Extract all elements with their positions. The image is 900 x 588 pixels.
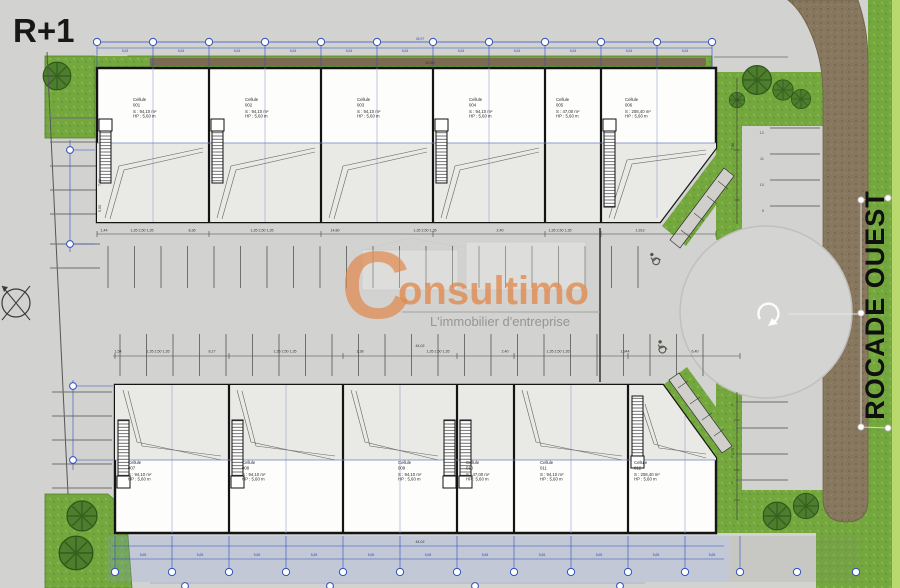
building-bottom-shade xyxy=(115,385,716,460)
cell-number: 010 xyxy=(466,465,474,470)
bay-dim: 5,63 xyxy=(178,49,185,53)
bay-dim: 5,63 xyxy=(234,49,241,53)
cell-height: HP : 5,60 m xyxy=(625,114,648,119)
cell-height: HP : 5,60 m xyxy=(466,477,489,482)
cell-height: HP : 5,60 m xyxy=(242,477,265,482)
cell-number: 008 xyxy=(242,465,250,470)
cell-number: 012 xyxy=(634,465,642,470)
cell-title: Cellule xyxy=(540,460,554,465)
floor-label: R+1 xyxy=(13,12,74,49)
bay-dim: 5,65 xyxy=(425,553,432,557)
watermark-brand: onsultimo xyxy=(398,269,589,313)
cell-height: HP : 5,60 m xyxy=(634,477,657,482)
dim-value: 1,35 2,50 1,35 xyxy=(547,350,570,354)
cell-height: HP : 5,60 m xyxy=(556,114,579,119)
dim-value: 6,40 xyxy=(692,350,699,354)
dim-value: 1,35 2,50 1,35 xyxy=(131,229,154,233)
dim-value: 1,913 xyxy=(636,229,645,233)
bay-dim: 5,65 xyxy=(254,553,261,557)
plan-canvas: 12 11 10 9 8 7 6 5 xyxy=(0,0,900,588)
watermark: C onsultimo L'immobilier d'entreprise xyxy=(341,232,600,339)
dim-value: 1,35 2,50 1,35 xyxy=(549,229,572,233)
cell-number: 001 xyxy=(133,102,141,107)
cell-title: Cellule xyxy=(634,460,648,465)
site-plan: 12 11 10 9 8 7 6 5 xyxy=(0,0,900,588)
cell-title: Cellule xyxy=(242,460,256,465)
cell-number: 006 xyxy=(625,102,633,107)
parking-number: 10 xyxy=(760,182,765,187)
bay-dim: 5,63 xyxy=(402,49,409,53)
cell-title: Cellule xyxy=(469,97,483,102)
cell-title: Cellule xyxy=(556,97,570,102)
bay-dim: 5,65 xyxy=(596,553,603,557)
cell-number: 009 xyxy=(398,465,406,470)
dim-value: 1,944 xyxy=(621,350,630,354)
dim-value-vertical: 7,98 xyxy=(731,143,735,150)
bay-dim: 5,65 xyxy=(368,553,375,557)
building-top: Cellule 001 S : 94,10 m² HP : 5,60 m Cel… xyxy=(97,68,716,222)
dim-total-bottom: 44,02 xyxy=(416,540,425,544)
roundabout xyxy=(680,226,852,398)
dim-value-vertical: 7,88 xyxy=(98,179,102,186)
bay-dim: 5,63 xyxy=(682,49,689,53)
dim-total: 44,02 xyxy=(416,344,425,348)
road-name-label: ROCADE OUEST xyxy=(860,190,890,420)
dim-value: 2,40 xyxy=(497,229,504,233)
bay-dim: 5,63 xyxy=(514,49,521,53)
cell-number: 003 xyxy=(357,102,365,107)
cell-height: HP : 5,60 m xyxy=(245,114,268,119)
dim-value: 1,35 2,50 1,35 xyxy=(427,350,450,354)
dim-value: 8,17 xyxy=(209,350,216,354)
bay-dim: 5,65 xyxy=(709,553,716,557)
cell-height: HP : 5,60 m xyxy=(469,114,492,119)
dim-value: 8,36 xyxy=(189,229,196,233)
cell-title: Cellule xyxy=(625,97,639,102)
green-verge-light xyxy=(892,0,900,588)
dim-value-vertical: 5,00 xyxy=(98,205,102,212)
cell-number: 004 xyxy=(469,102,477,107)
bay-dim: 5,63 xyxy=(570,49,577,53)
dim-value-vertical: 4,70 xyxy=(731,448,735,455)
cell-title: Cellule xyxy=(128,460,142,465)
parking-number: 12 xyxy=(760,130,765,135)
bay-dim: 5,63 xyxy=(346,49,353,53)
cell-height: HP : 5,60 m xyxy=(133,114,156,119)
dim-value: 14,80 xyxy=(331,229,340,233)
bay-dim: 5,65 xyxy=(539,553,546,557)
cell-height: HP : 5,60 m xyxy=(398,477,421,482)
cell-number: 002 xyxy=(245,102,253,107)
bay-dim: 5,65 xyxy=(482,553,489,557)
building-bottom: Cellule 007 S : 94,10 m² HP : 5,60 m Cel… xyxy=(115,385,716,533)
cell-title: Cellule xyxy=(398,460,412,465)
bay-dim: 5,65 xyxy=(653,553,660,557)
bay-dim: 5,65 xyxy=(140,553,147,557)
dim-inner-top: 43,60 xyxy=(426,61,435,65)
dim-value: 1,35 2,50 1,35 xyxy=(147,350,170,354)
cell-height: HP : 5,60 m xyxy=(540,477,563,482)
dim-value: 2,40 xyxy=(502,350,509,354)
dim-value: 1,35 2,50 1,35 xyxy=(251,229,274,233)
watermark-tagline: L'immobilier d'entreprise xyxy=(430,314,570,329)
cell-title: Cellule xyxy=(133,97,147,102)
bay-dim: 5,65 xyxy=(311,553,318,557)
cell-number: 005 xyxy=(556,102,564,107)
bottom-dimension-band: 44,02 5,65 5,65 5,65 5,65 5,65 5,65 5,65… xyxy=(108,536,860,588)
cell-title: Cellule xyxy=(357,97,371,102)
cell-number: 011 xyxy=(540,465,547,470)
bay-dim: 5,63 xyxy=(626,49,633,53)
bay-dim: 5,63 xyxy=(122,49,129,53)
cell-height: HP : 5,60 m xyxy=(357,114,380,119)
dim-value: 1,35 2,50 1,35 xyxy=(414,229,437,233)
bay-dim: 5,63 xyxy=(458,49,465,53)
dim-value: 1,38 xyxy=(357,350,364,354)
dim-total-top: 45,97 xyxy=(416,37,425,41)
cell-number: 007 xyxy=(128,465,136,470)
cell-height: HP : 5,60 m xyxy=(128,477,151,482)
dim-value: 1,54 xyxy=(115,350,122,354)
dim-value: 1,35 2,50 1,35 xyxy=(274,350,297,354)
cell-title: Cellule xyxy=(245,97,259,102)
cell-title: Cellule xyxy=(466,460,480,465)
bay-dim: 5,65 xyxy=(197,553,204,557)
dim-value: 1,44 xyxy=(101,229,108,233)
bay-dim: 5,63 xyxy=(290,49,297,53)
